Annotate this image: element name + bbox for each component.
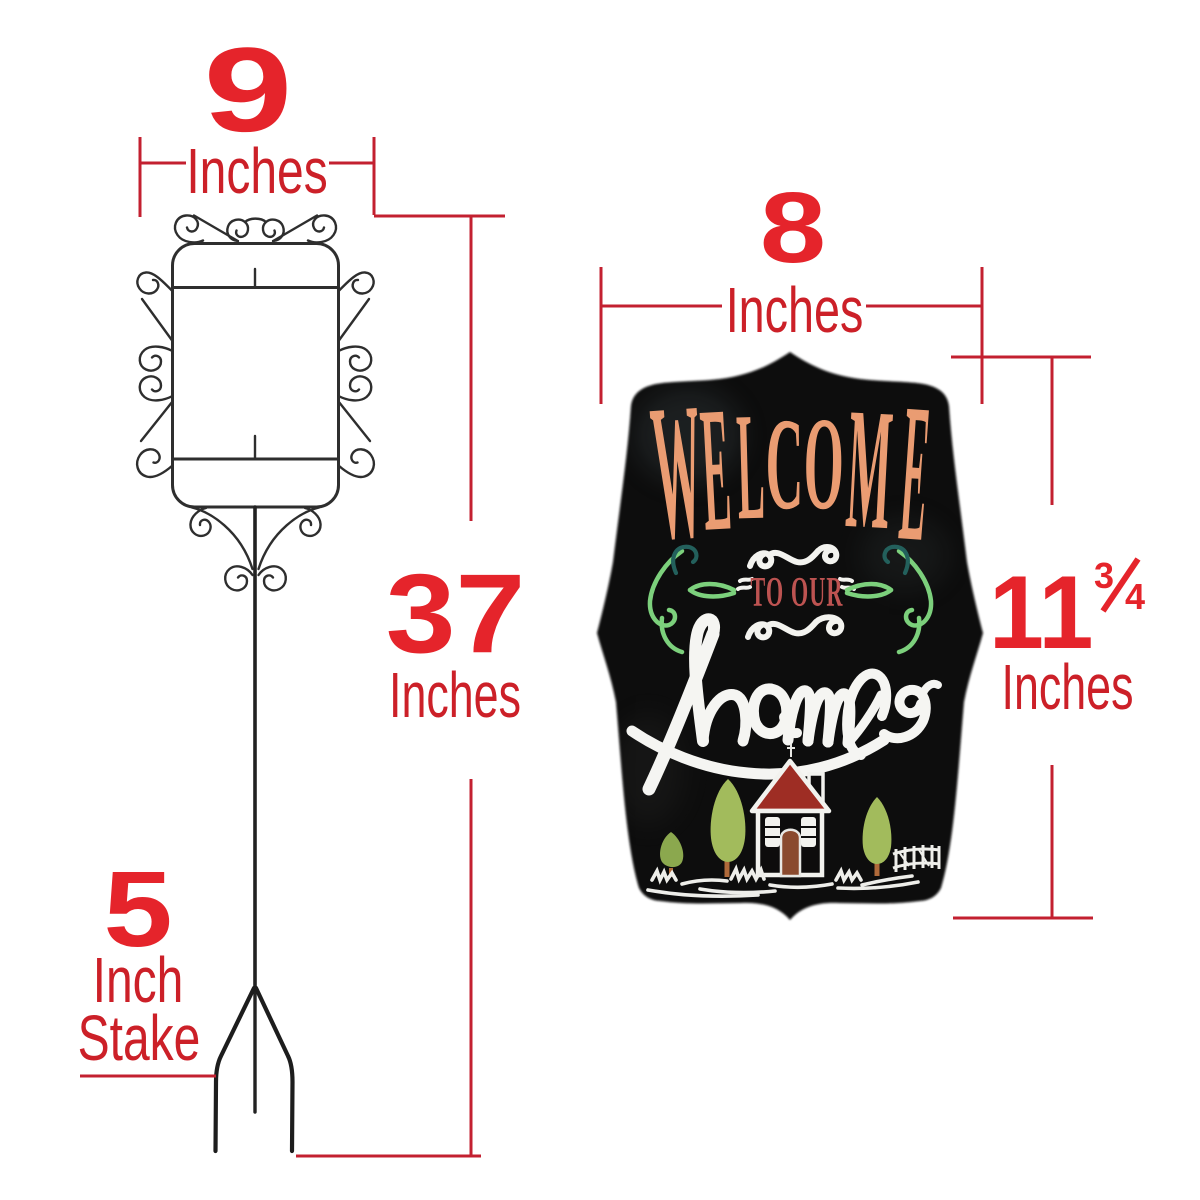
svg-text:Inches: Inches [726, 274, 864, 346]
svg-text:TO OUR: TO OUR [750, 570, 843, 616]
svg-text:Inches: Inches [1002, 651, 1134, 723]
svg-text:Inches: Inches [186, 135, 327, 206]
svg-text:L: L [735, 382, 767, 552]
svg-text:Stake: Stake [78, 1002, 201, 1073]
svg-text:37: 37 [386, 551, 526, 676]
svg-text:4: 4 [1125, 576, 1145, 617]
svg-text:O: O [802, 389, 845, 537]
svg-text:3: 3 [1094, 555, 1114, 596]
svg-text:8: 8 [760, 173, 826, 284]
svg-text:Inches: Inches [389, 659, 521, 731]
svg-text:C: C [766, 391, 804, 537]
